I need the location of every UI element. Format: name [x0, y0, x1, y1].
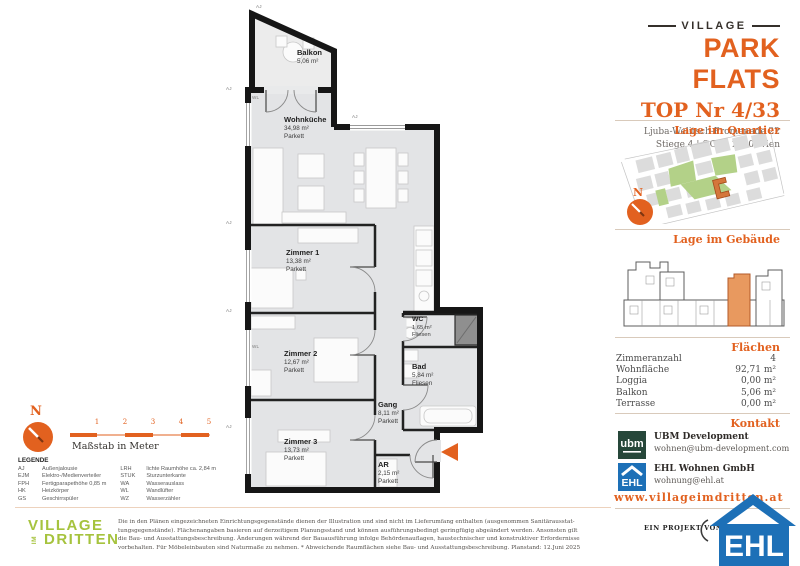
- table-row: Loggia0,00 m²: [616, 376, 782, 387]
- brand-village: VILLAGE: [681, 20, 746, 32]
- legend-row: AJAußenjalousie: [18, 466, 106, 474]
- logo-line2: DRITTEN: [44, 533, 120, 547]
- svg-text:ubm: ubm: [620, 438, 643, 450]
- wall-marker-aj: AJ: [226, 424, 232, 429]
- footer-rule: [15, 507, 611, 508]
- highlighted-unit: [728, 274, 750, 326]
- contact-name: EHL Wohnen GmbH: [654, 463, 755, 475]
- wall-marker-wl: WL: [252, 95, 259, 100]
- wall-marker-aj: AJ: [226, 308, 232, 313]
- legend-row: HKHeizkörper: [18, 488, 106, 496]
- table-row: Zimmeranzahl4: [616, 354, 782, 365]
- scale-ticks: 1 2 3 4 5: [70, 418, 210, 428]
- legend-column: AJAußenjalousieEJMElektro-/Medienverteil…: [18, 466, 106, 504]
- legend-row: FPHFertigparapethöhe 0,85 m: [18, 481, 106, 489]
- compass-icon: [626, 198, 654, 226]
- unit-title: TOP Nr 4/33: [612, 98, 780, 122]
- village-im-dritten-logo: VILLAGE IM DRITTEN: [28, 519, 120, 547]
- plan-legend: LEGENDE AJAußenjalousieEJMElektro-/Medie…: [18, 457, 216, 504]
- building-map: [616, 248, 792, 334]
- entrance-arrow-icon: [441, 443, 458, 461]
- legend-row: WLWandlüfter: [120, 488, 216, 496]
- divider: [615, 337, 790, 338]
- divider: [615, 229, 790, 230]
- ehl-logo-icon: EHL: [618, 463, 646, 491]
- wall-marker-wl: WL: [252, 344, 259, 349]
- wall-marker-aj: AJ: [256, 4, 262, 9]
- legend-row: LRHlichte Raumhöhe ca. 2,84 m: [120, 466, 216, 474]
- table-row: Balkon5,06 m²: [616, 388, 782, 399]
- contact-ehl: EHL EHL Wohnen GmbH wohnung@ehl.at: [618, 463, 790, 491]
- section-title-gebaeude: Lage im Gebäude: [612, 233, 792, 246]
- legend-title: LEGENDE: [18, 457, 216, 465]
- contact-email[interactable]: wohnung@ehl.at: [654, 475, 755, 486]
- legend-row: EJMElektro-/Medienverteiler: [18, 473, 106, 481]
- legend-row: STUKSturzunterkante: [120, 473, 216, 481]
- compass-icon: [22, 421, 54, 453]
- ehl-wordmark: EHL: [724, 530, 784, 563]
- logo-im: IM: [28, 536, 42, 544]
- legend-column: LRHlichte Raumhöhe ca. 2,84 mSTUKSturzun…: [120, 466, 216, 504]
- legend-row: GSGeschirrspüler: [18, 496, 106, 504]
- contact-ubm: ubm UBM Development wohnen@ubm-developme…: [618, 431, 790, 459]
- legend-row: WAWasserauslass: [120, 481, 216, 489]
- divider: [615, 413, 790, 414]
- ubm-logo-icon: ubm: [618, 431, 646, 459]
- wall-marker-aj: AJ: [226, 86, 232, 91]
- table-row: Wohnfläche92,71 m²: [616, 365, 782, 376]
- scale-caption: Maßstab in Meter: [72, 441, 159, 452]
- contact-name: UBM Development: [654, 431, 789, 443]
- section-title-kontakt: Kontakt: [612, 417, 792, 430]
- table-row: Terrasse0,00 m²: [616, 399, 782, 410]
- disclaimer: Die in den Plänen eingezeichneten Einric…: [118, 518, 614, 552]
- legend-row: WZWasserzähler: [120, 496, 216, 504]
- svg-text:EHL: EHL: [622, 477, 644, 489]
- brand-village-row: VILLAGE: [648, 20, 780, 32]
- floor-plan-sheet: Balkon 5,06 m² Wohnküche 34,98 m² Parket…: [0, 0, 800, 566]
- wall-marker-aj: AJ: [226, 220, 232, 225]
- wall-marker-aj: AJ: [352, 114, 358, 119]
- brand-line-right: [752, 25, 780, 27]
- scale-bar: [70, 431, 210, 439]
- areas-table: Zimmeranzahl4 Wohnfläche92,71 m² Loggia0…: [616, 354, 782, 410]
- compass-n-label: N: [30, 404, 42, 419]
- contact-email[interactable]: wohnen@ubm-development.com: [654, 443, 789, 454]
- divider: [615, 120, 790, 121]
- brand-parkflats: PARK FLATS: [612, 33, 780, 95]
- section-title-flaechen: Flächen: [612, 341, 792, 354]
- brand-line-left: [648, 25, 676, 27]
- ehl-big-logo-icon: EHL: [710, 494, 796, 566]
